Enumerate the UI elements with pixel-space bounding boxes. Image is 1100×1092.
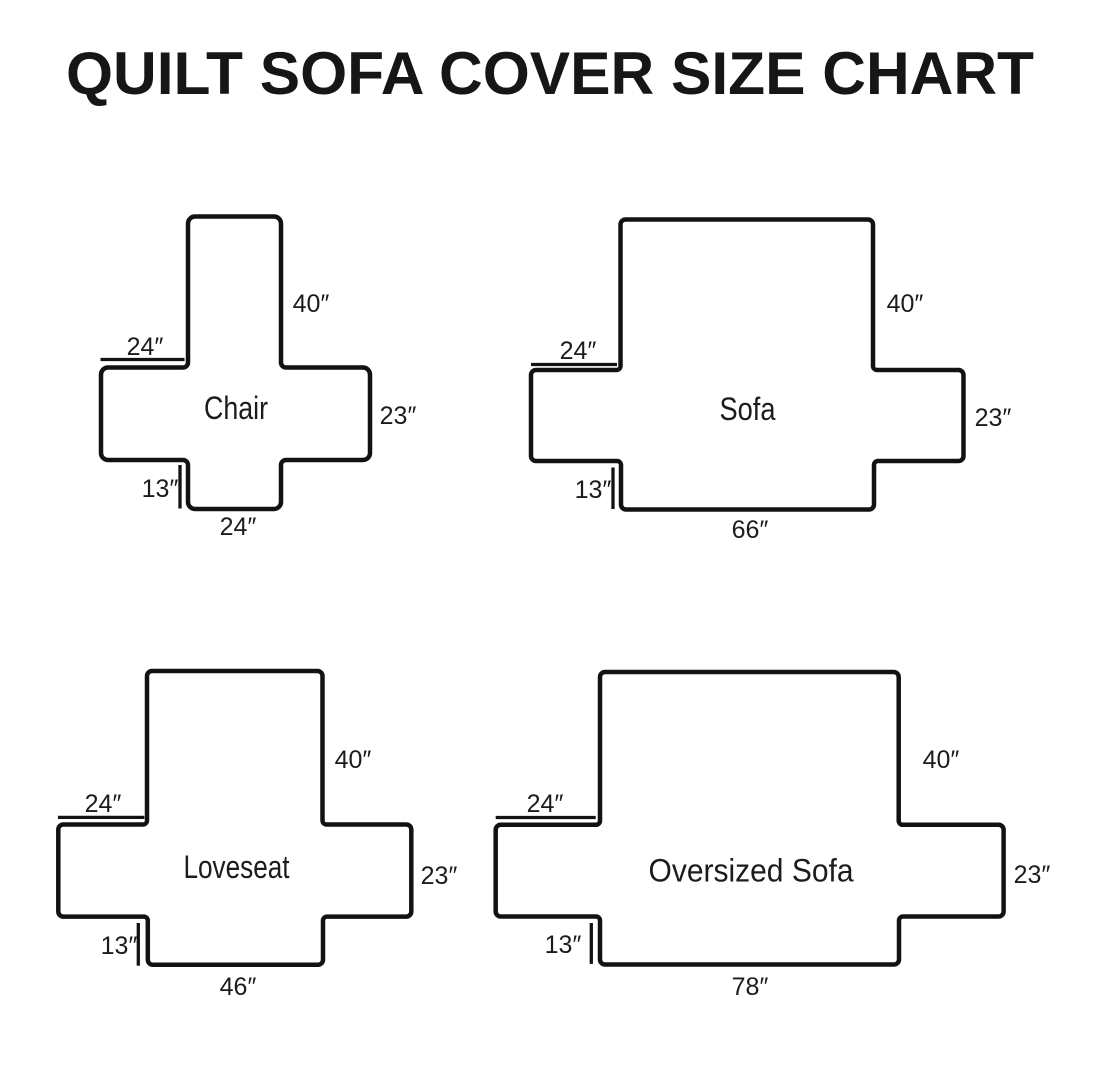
svg-text:23″: 23″: [421, 862, 458, 890]
svg-text:Oversized Sofa: Oversized Sofa: [649, 853, 854, 889]
svg-text:13″: 13″: [575, 476, 612, 504]
svg-text:Sofa: Sofa: [720, 391, 776, 427]
svg-text:23″: 23″: [1014, 861, 1051, 889]
svg-text:24″: 24″: [127, 333, 164, 361]
svg-text:40″: 40″: [923, 746, 960, 774]
svg-text:23″: 23″: [380, 402, 417, 430]
svg-text:40″: 40″: [335, 746, 372, 774]
svg-text:Chair: Chair: [204, 390, 268, 426]
svg-text:24″: 24″: [85, 790, 122, 818]
svg-text:13″: 13″: [545, 931, 582, 959]
svg-text:QUILT SOFA COVER SIZE CHART: QUILT SOFA COVER SIZE CHART: [66, 39, 1034, 107]
svg-text:24″: 24″: [560, 337, 597, 365]
svg-text:13″: 13″: [101, 932, 138, 960]
svg-text:24″: 24″: [527, 790, 564, 818]
svg-text:24″: 24″: [220, 513, 257, 541]
svg-text:13″: 13″: [142, 475, 179, 503]
svg-text:Loveseat: Loveseat: [184, 849, 290, 885]
svg-text:40″: 40″: [293, 290, 330, 318]
svg-text:23″: 23″: [975, 404, 1012, 432]
svg-text:40″: 40″: [887, 290, 924, 318]
svg-text:78″: 78″: [732, 973, 769, 1001]
svg-text:46″: 46″: [220, 973, 257, 1001]
svg-text:66″: 66″: [732, 516, 769, 544]
